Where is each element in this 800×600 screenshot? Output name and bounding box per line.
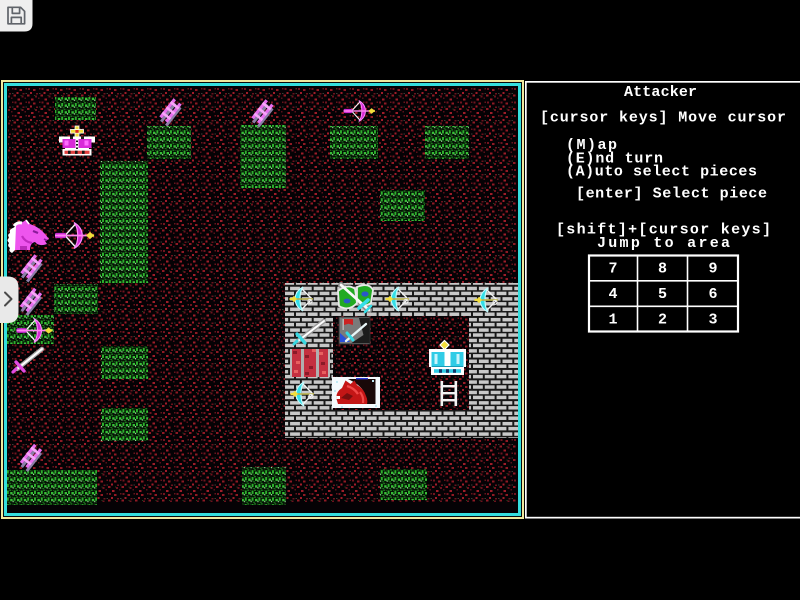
svg-text:1: 1 [608,312,617,329]
svg-text:4: 4 [608,286,617,303]
svg-text:8: 8 [658,261,667,278]
svg-text:9: 9 [708,261,717,278]
svg-text:2: 2 [658,312,667,329]
svg-text:5: 5 [658,286,667,303]
svg-text:Attacker: Attacker [624,84,697,101]
svg-text:[shift]+[cursor keys]: [shift]+[cursor keys] [556,222,771,239]
svg-text:3: 3 [708,312,717,329]
svg-text:[cursor keys] Move cursor: [cursor keys] Move cursor [540,110,786,127]
svg-text:7: 7 [608,261,617,278]
svg-text:(A)uto select pieces: (A)uto select pieces [566,164,757,181]
svg-text:[enter] Select piece: [enter] Select piece [576,185,767,202]
svg-text:6: 6 [708,286,717,303]
